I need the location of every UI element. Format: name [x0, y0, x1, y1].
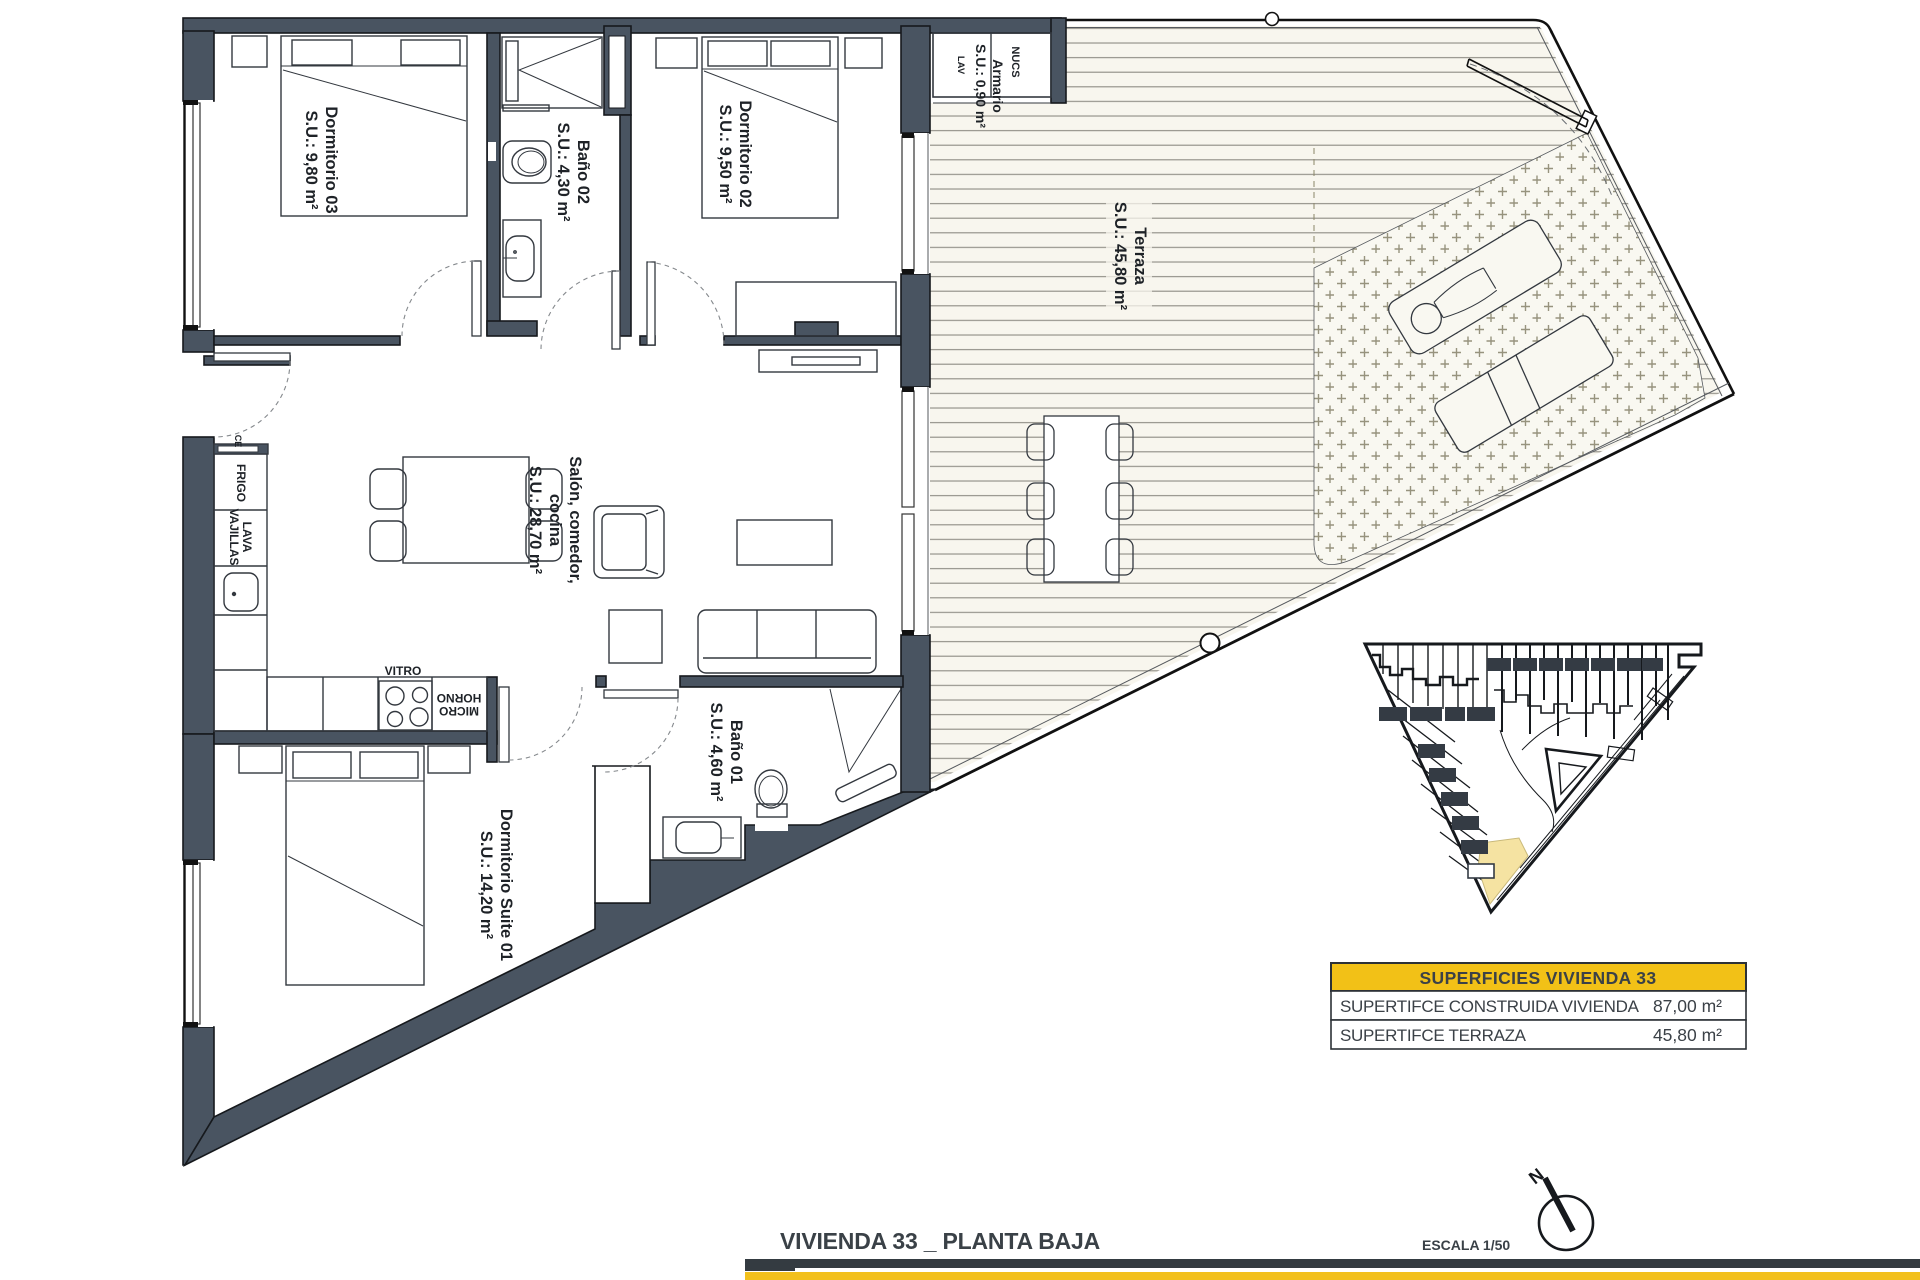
- svg-text:MICRO: MICRO: [439, 704, 479, 718]
- svg-text:87,00 m²: 87,00 m²: [1653, 996, 1722, 1016]
- svg-text:S.U.: 0,90 m²: S.U.: 0,90 m²: [973, 44, 989, 128]
- svg-text:Dormitorio Suite 01: Dormitorio Suite 01: [497, 809, 515, 961]
- svg-text:SUPERTIFCE CONSTRUIDA VIVIENDA: SUPERTIFCE CONSTRUIDA VIVIENDA: [1340, 997, 1640, 1016]
- svg-text:Dormitorio 03: Dormitorio 03: [322, 106, 340, 213]
- svg-text:S.U.: 9,50 m²: S.U.: 9,50 m²: [716, 104, 734, 204]
- svg-text:HORNO: HORNO: [437, 691, 482, 705]
- svg-text:VITRO: VITRO: [385, 664, 422, 678]
- svg-text:S.U.: 9,80 m²: S.U.: 9,80 m²: [302, 110, 320, 210]
- svg-text:SUPERTIFCE TERRAZA: SUPERTIFCE TERRAZA: [1340, 1026, 1527, 1045]
- svg-text:Baño 02: Baño 02: [574, 140, 592, 204]
- svg-text:CE: CE: [233, 435, 243, 448]
- svg-text:LAVA: LAVA: [240, 522, 254, 553]
- svg-text:NUCS: NUCS: [1009, 46, 1021, 77]
- svg-text:Terraza: Terraza: [1131, 227, 1149, 285]
- svg-text:S.U.: 45,80 m²: S.U.: 45,80 m²: [1111, 202, 1129, 311]
- svg-text:VIVIENDA 33 _ PLANTA BAJA: VIVIENDA 33 _ PLANTA BAJA: [780, 1228, 1100, 1254]
- svg-text:S.U.: 14,20 m²: S.U.: 14,20 m²: [477, 831, 495, 940]
- svg-text:45,80 m²: 45,80 m²: [1653, 1025, 1722, 1045]
- svg-text:S.U.: 4,30 m²: S.U.: 4,30 m²: [554, 122, 572, 222]
- svg-text:SUPERFICIES VIVIENDA 33: SUPERFICIES VIVIENDA 33: [1419, 968, 1656, 988]
- svg-text:Baño 01: Baño 01: [727, 720, 745, 784]
- svg-text:LAV: LAV: [955, 56, 966, 75]
- svg-text:VAJILLAS: VAJILLAS: [227, 508, 241, 565]
- svg-text:cocina: cocina: [546, 494, 564, 547]
- svg-text:Armario: Armario: [990, 59, 1006, 113]
- svg-text:Dormitorio 02: Dormitorio 02: [736, 100, 754, 207]
- svg-text:ESCALA 1/50: ESCALA 1/50: [1422, 1237, 1510, 1253]
- svg-text:S.U.: 28,70 m²: S.U.: 28,70 m²: [526, 466, 544, 575]
- svg-text:FRIGO: FRIGO: [234, 464, 248, 502]
- svg-text:S.U.: 4,60 m²: S.U.: 4,60 m²: [707, 702, 725, 802]
- svg-text:Salón, comedor,: Salón, comedor,: [566, 456, 584, 583]
